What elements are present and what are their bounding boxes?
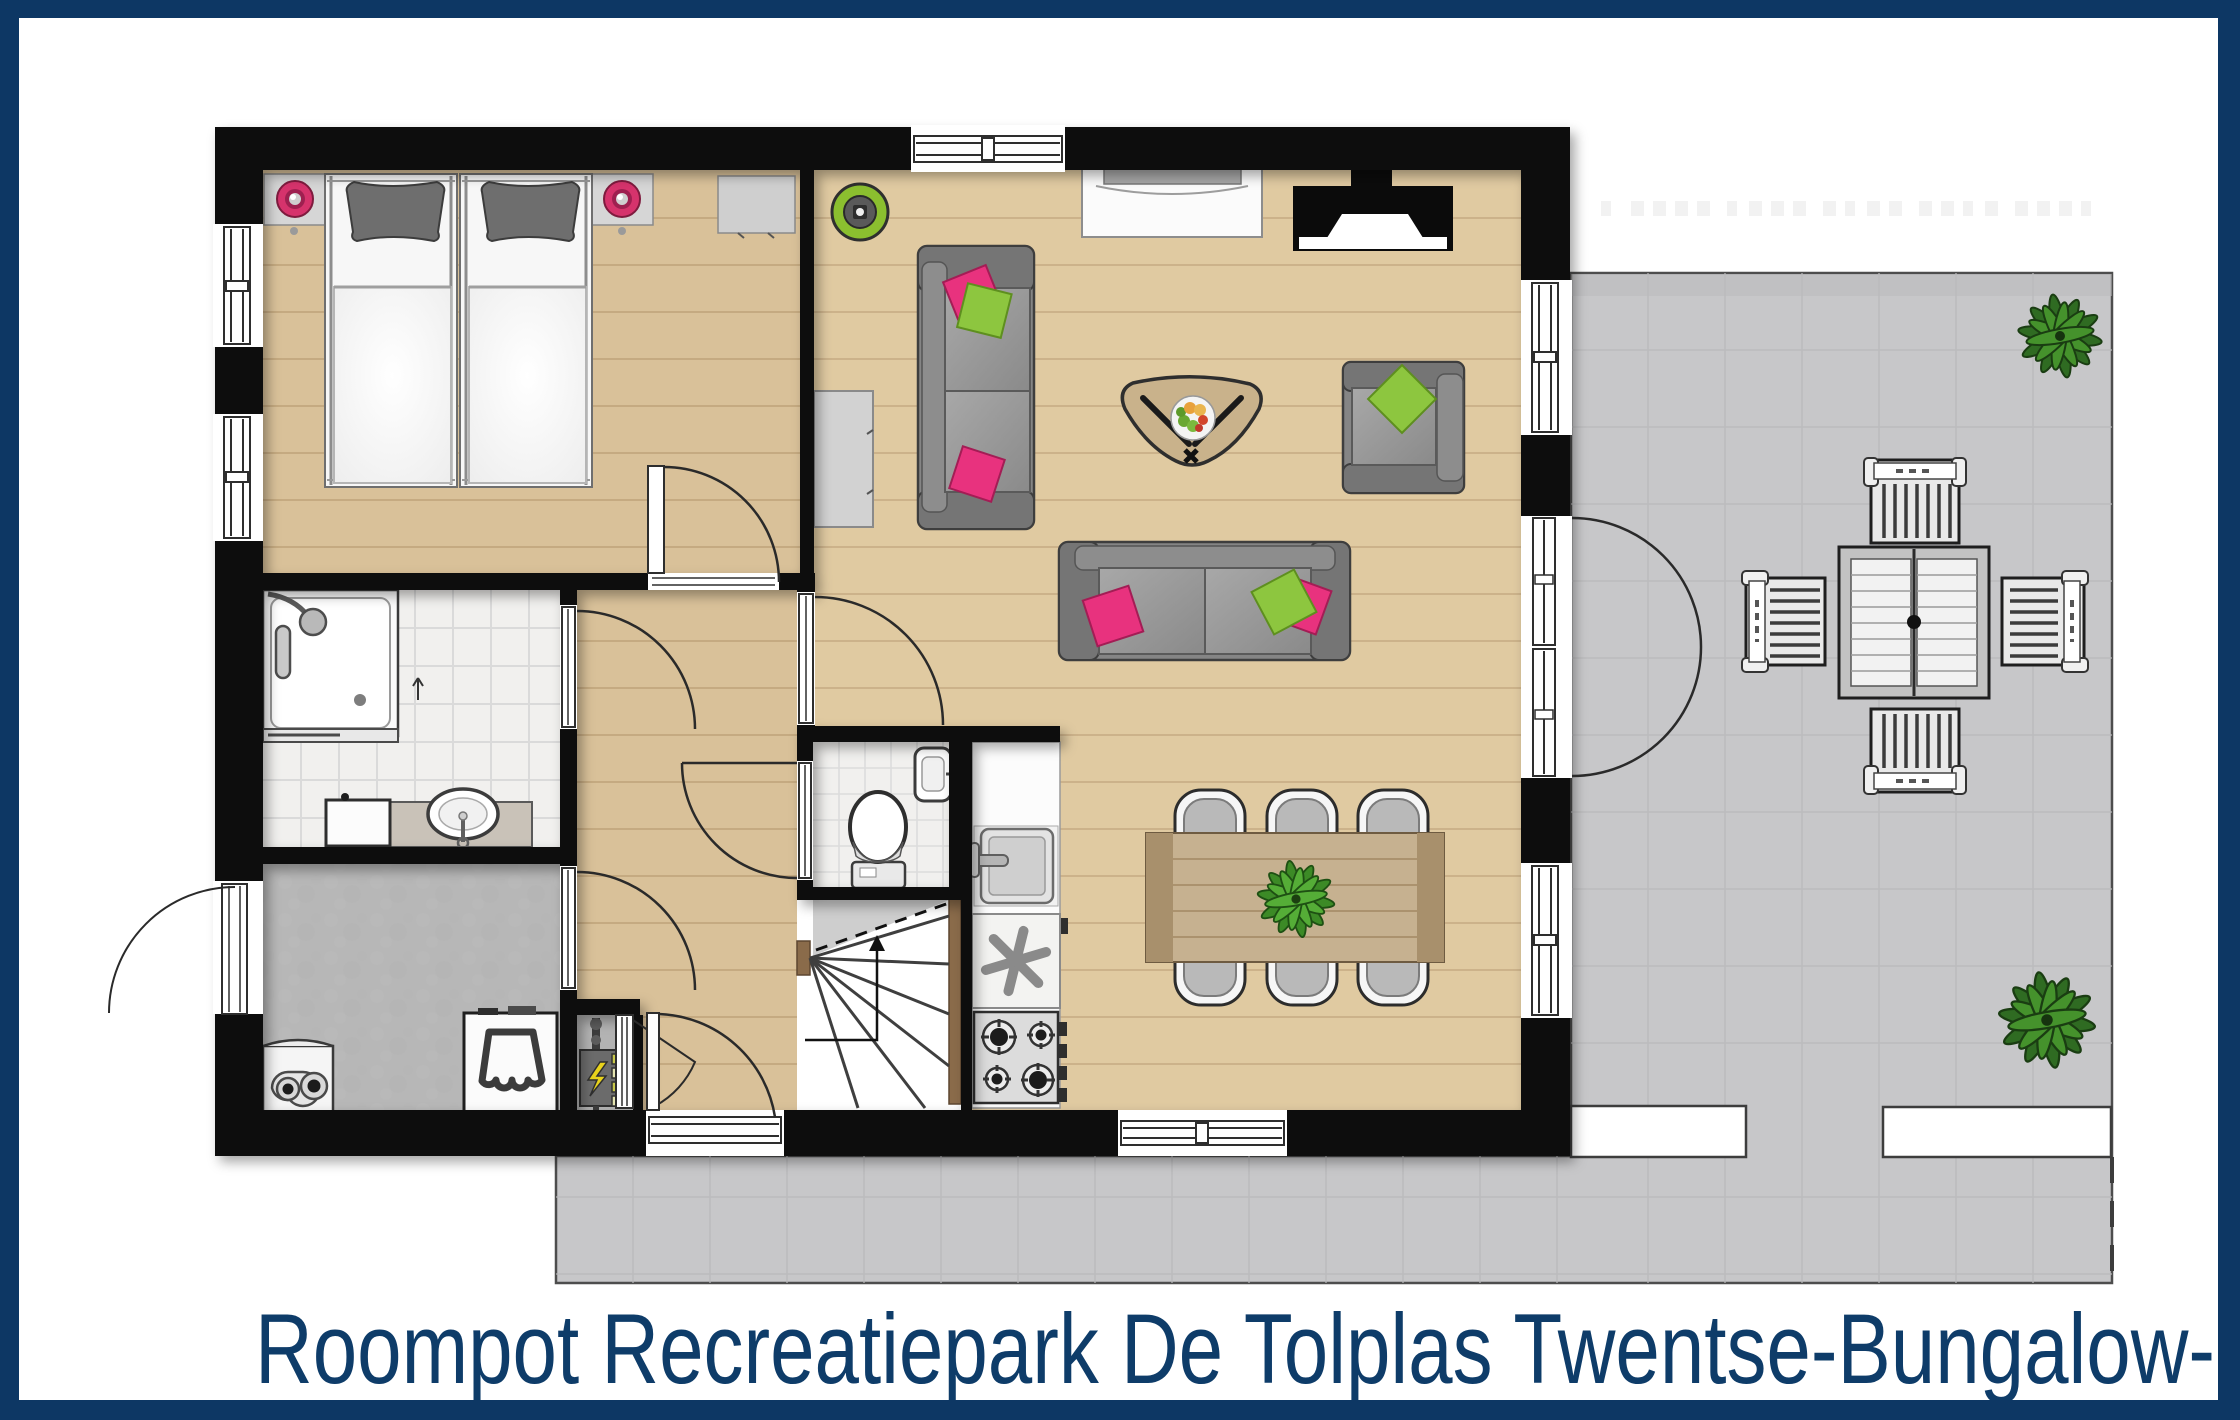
svg-text:Roompot Recreatiepark De Tolpl: Roompot Recreatiepark De Tolplas Twentse… <box>255 1293 2215 1404</box>
